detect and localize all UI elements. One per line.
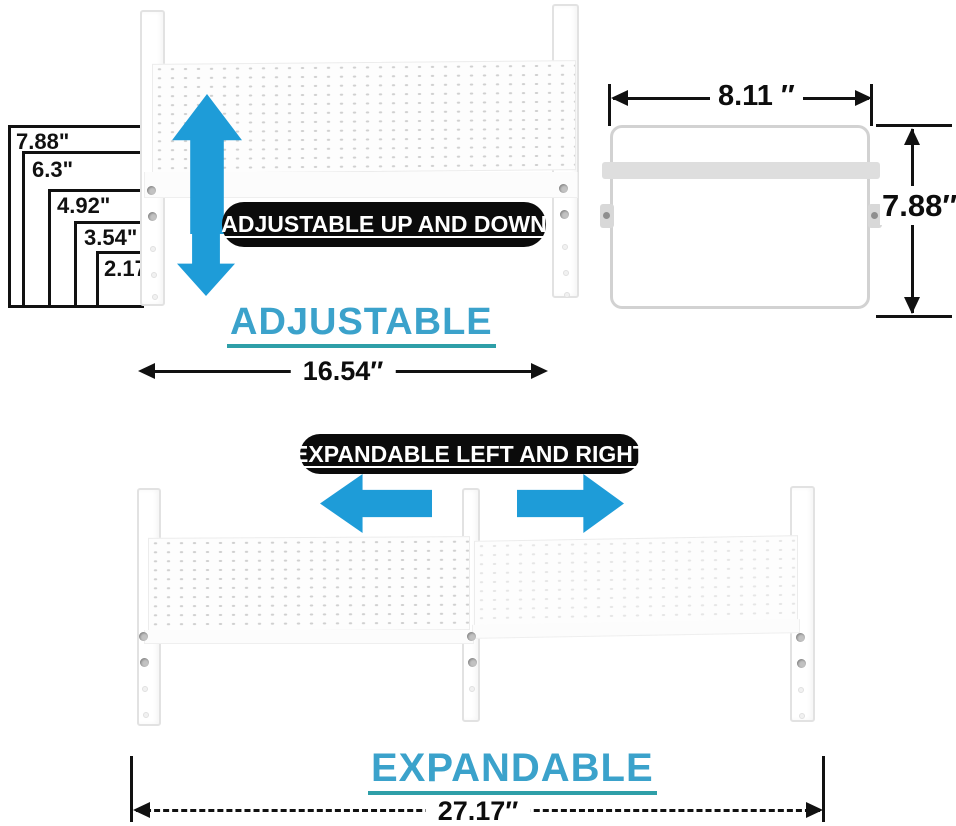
side-view-shelf-band xyxy=(602,162,880,179)
bracket-hline xyxy=(74,221,141,224)
post-hole xyxy=(562,244,568,250)
adjustable-heading: ADJUSTABLE xyxy=(227,303,496,348)
screw xyxy=(467,632,476,641)
bracket-vline xyxy=(8,125,11,308)
screw xyxy=(560,210,569,219)
side-view-frame xyxy=(610,125,870,309)
bracket-vline xyxy=(48,189,51,308)
height-label: 4.92" xyxy=(57,195,110,217)
post-hole xyxy=(563,270,569,276)
post-hole xyxy=(151,272,157,278)
screw xyxy=(468,658,477,667)
side-height-label: 7.88″ xyxy=(880,186,956,225)
post-hole xyxy=(564,292,570,298)
bracket-hline xyxy=(8,125,141,128)
product-dimension-diagram: 7.88" 6.3" 4.92" 3.54" 2.17" ADJUSTABLE … xyxy=(0,0,956,826)
screw xyxy=(139,632,148,641)
bracket-hline xyxy=(96,251,141,254)
expandable-shelf-image xyxy=(130,480,830,730)
dim-end-tick xyxy=(876,124,952,127)
adjustable-callout-pill: ADJUSTABLE UP AND DOWN xyxy=(222,202,546,247)
dimension-arrowhead-right xyxy=(806,802,823,818)
post-hole xyxy=(469,686,475,692)
width-dimension-27-17: 27.17″ xyxy=(130,756,826,824)
bracket-vline xyxy=(74,221,77,308)
post-hole xyxy=(150,246,156,252)
screw xyxy=(797,659,806,668)
expandable-callout-pill: EXPANDABLE LEFT AND RIGHT xyxy=(300,434,640,474)
width-label: 16.54″ xyxy=(291,358,396,385)
right-perforated-deck xyxy=(474,535,798,627)
dimension-arrowhead-left xyxy=(611,90,628,106)
bracket-vline xyxy=(22,151,25,308)
left-perforated-deck xyxy=(148,536,470,632)
dimension-arrowhead-right xyxy=(531,363,548,379)
screw xyxy=(559,184,568,193)
post-hole xyxy=(799,713,805,719)
height-label: 6.3" xyxy=(32,159,73,181)
post-hole xyxy=(798,687,804,693)
screw xyxy=(140,658,149,667)
height-label: 7.88" xyxy=(16,131,69,153)
side-width-label: 8.11 ″ xyxy=(710,82,803,111)
height-label: 3.54" xyxy=(84,227,137,249)
bracket-vline xyxy=(96,251,99,308)
screw xyxy=(148,212,157,221)
post-hole xyxy=(142,686,148,692)
dimension-arrowhead-up xyxy=(904,128,920,145)
side-clip-left xyxy=(600,204,614,228)
side-view-diagram: 8.11 ″ 7.88″ xyxy=(600,78,956,324)
post-hole xyxy=(143,712,149,718)
screw xyxy=(796,633,805,642)
width-label: 27.17″ xyxy=(426,798,531,825)
dimension-arrowhead-down xyxy=(904,297,920,314)
bracket-hline xyxy=(48,189,141,192)
left-deck-front-edge xyxy=(144,630,474,644)
dimension-arrowhead-right xyxy=(855,90,872,106)
screw xyxy=(147,186,156,195)
dimension-arrowhead-left xyxy=(138,363,155,379)
width-dimension-16-54: 16.54″ xyxy=(138,358,548,388)
dim-end-tick xyxy=(876,315,952,318)
dimension-arrowhead-left xyxy=(133,802,150,818)
post-hole xyxy=(152,294,158,300)
